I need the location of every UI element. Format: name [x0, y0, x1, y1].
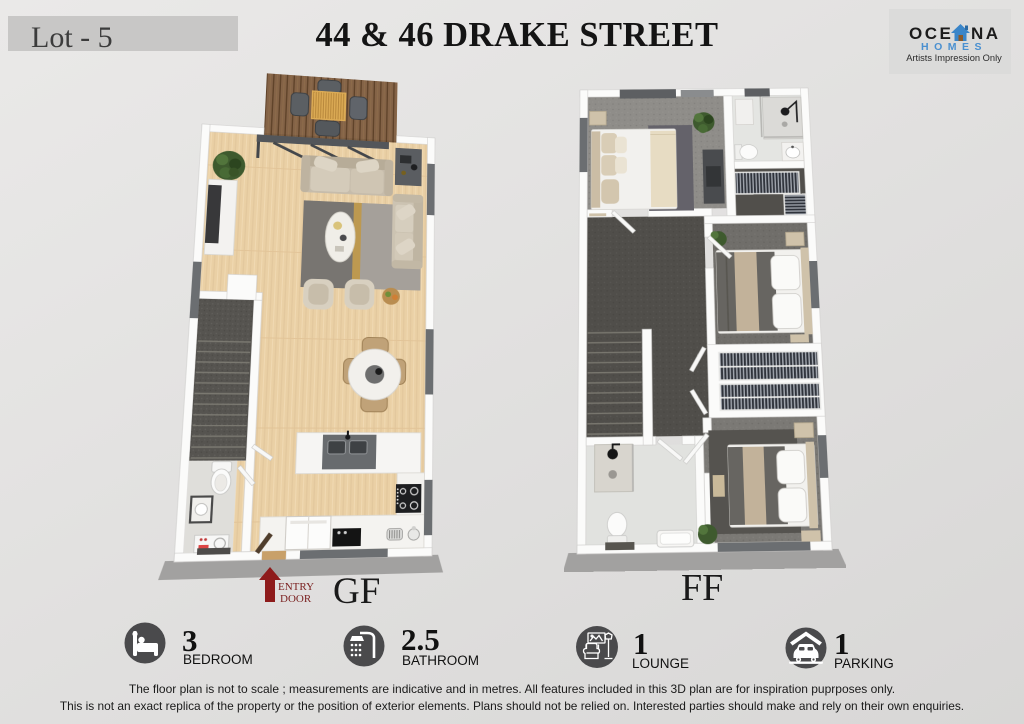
svg-text:44 & 46 DRAKE STREET: 44 & 46 DRAKE STREET: [316, 16, 719, 54]
svg-text:BEDROOM: BEDROOM: [183, 652, 253, 667]
svg-text:FF: FF: [681, 567, 723, 609]
svg-text:This is not an exact replica o: This is not an exact replica of the prop…: [60, 699, 964, 713]
svg-text:2.5: 2.5: [401, 622, 440, 657]
svg-text:BATHROOM: BATHROOM: [402, 653, 479, 668]
svg-text:DOOR: DOOR: [280, 593, 312, 605]
svg-text:HOMES: HOMES: [921, 41, 987, 53]
svg-text:The floor plan is not to scale: The floor plan is not to scale ; measure…: [129, 682, 895, 696]
svg-text:LOUNGE: LOUNGE: [632, 656, 689, 671]
svg-text:Lot - 5: Lot - 5: [31, 21, 113, 54]
svg-text:PARKING: PARKING: [834, 656, 894, 671]
svg-text:ENTRY: ENTRY: [278, 581, 314, 593]
svg-text:GF: GF: [333, 571, 380, 612]
svg-text:Artists Impression Only: Artists Impression Only: [906, 53, 1002, 63]
